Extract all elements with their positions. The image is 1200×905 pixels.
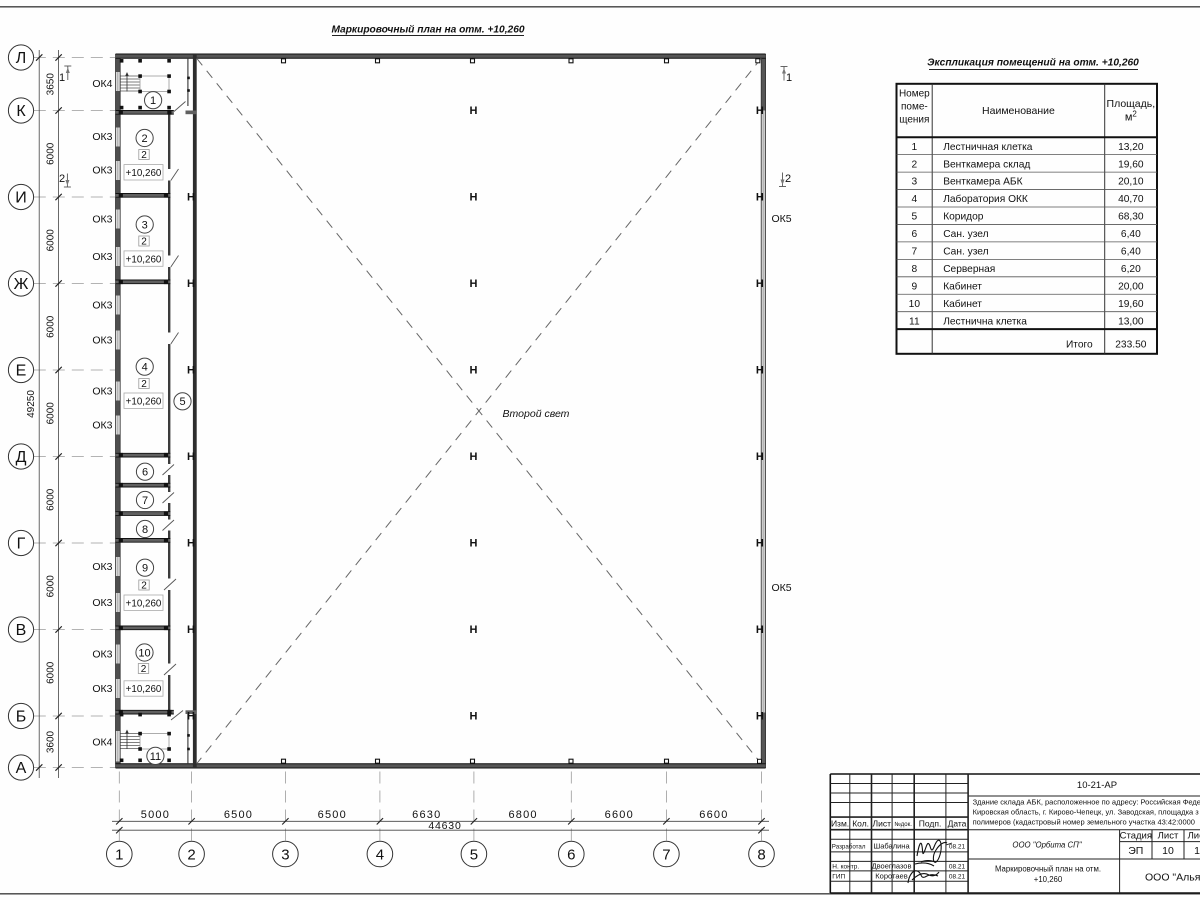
- svg-text:Н: Н: [756, 364, 764, 376]
- svg-text:7: 7: [142, 495, 148, 507]
- svg-text:1: 1: [59, 72, 65, 84]
- svg-text:Площадь,: Площадь,: [1107, 98, 1156, 110]
- svg-text:Лист: Лист: [873, 819, 892, 829]
- svg-text:Кол.: Кол.: [852, 819, 869, 829]
- svg-text:Г: Г: [17, 536, 26, 553]
- svg-text:10: 10: [138, 647, 150, 659]
- svg-text:+10,260: +10,260: [126, 684, 162, 695]
- svg-text:5: 5: [912, 212, 918, 223]
- svg-text:2: 2: [141, 379, 147, 390]
- svg-text:3650: 3650: [45, 73, 56, 96]
- svg-text:Дата: Дата: [948, 819, 967, 829]
- svg-text:2: 2: [187, 846, 195, 863]
- svg-text:Н: Н: [470, 451, 478, 463]
- svg-text:ОК3: ОК3: [92, 386, 112, 398]
- svg-text:ОК3: ОК3: [92, 251, 112, 263]
- svg-text:+10,260: +10,260: [1034, 875, 1063, 884]
- svg-text:3: 3: [142, 219, 148, 231]
- svg-text:Н: Н: [470, 278, 478, 290]
- svg-text:Ж: Ж: [14, 276, 29, 293]
- svg-text:Н: Н: [470, 537, 478, 549]
- svg-text:20,10: 20,10: [1118, 177, 1144, 188]
- svg-text:Венткамера склад: Венткамера склад: [943, 159, 1030, 170]
- svg-text:Н: Н: [756, 451, 764, 463]
- svg-text:Серверная: Серверная: [943, 264, 995, 275]
- svg-text:5: 5: [179, 396, 185, 408]
- svg-text:233.50: 233.50: [1115, 340, 1146, 351]
- svg-text:40,70: 40,70: [1118, 194, 1144, 205]
- svg-text:ОК3: ОК3: [92, 131, 112, 143]
- svg-text:ОК5: ОК5: [772, 213, 792, 225]
- svg-text:9: 9: [912, 281, 918, 292]
- svg-text:Подп.: Подп.: [919, 819, 942, 829]
- svg-text:Н: Н: [470, 624, 478, 636]
- svg-text:Листов: Листов: [1188, 831, 1200, 842]
- svg-text:В: В: [16, 622, 27, 639]
- svg-text:Экспликация помещений на отм.: Экспликация помещений на отм. +10,260: [927, 58, 1139, 69]
- svg-text:Второй свет: Второй свет: [503, 408, 570, 420]
- svg-text:Маркировочный план на отм.: Маркировочный план на отм.: [995, 865, 1101, 874]
- svg-text:Двоеглазов: Двоеглазов: [872, 862, 912, 871]
- svg-text:Кировская область, г. Кирово-Ч: Кировская область, г. Кирово-Чепецк, ул.…: [973, 808, 1200, 817]
- svg-text:Н: Н: [187, 624, 195, 636]
- svg-text:6: 6: [567, 846, 575, 863]
- svg-text:6,40: 6,40: [1121, 229, 1141, 240]
- svg-text:19,60: 19,60: [1118, 299, 1144, 310]
- svg-text:1: 1: [912, 142, 918, 153]
- svg-text:2: 2: [141, 664, 147, 675]
- svg-text:6: 6: [912, 229, 918, 240]
- svg-text:Н: Н: [187, 191, 195, 203]
- svg-text:Н: Н: [187, 364, 195, 376]
- svg-text:ОК3: ОК3: [92, 683, 112, 695]
- svg-text:Н: Н: [470, 710, 478, 722]
- svg-text:Кабинет: Кабинет: [943, 298, 982, 310]
- svg-text:Лестнична клетка: Лестнична клетка: [943, 316, 1027, 327]
- svg-text:6500: 6500: [224, 809, 253, 821]
- svg-text:3: 3: [281, 846, 289, 863]
- svg-text:Разработал: Разработал: [832, 844, 866, 851]
- svg-text:1: 1: [150, 95, 156, 107]
- svg-text:Коридор: Коридор: [943, 212, 984, 223]
- svg-text:6000: 6000: [45, 488, 56, 511]
- svg-text:ГИП: ГИП: [832, 874, 845, 881]
- svg-text:+10,260: +10,260: [126, 254, 162, 265]
- svg-text:№док.: №док.: [894, 821, 912, 828]
- svg-text:ОК3: ОК3: [92, 649, 112, 661]
- svg-text:8: 8: [757, 846, 765, 863]
- svg-text:Н: Н: [756, 191, 764, 203]
- svg-text:полимеров (кадастровый номер з: полимеров (кадастровый номер земельного …: [973, 818, 1195, 827]
- svg-text:Стадия: Стадия: [1120, 831, 1152, 842]
- svg-text:И: И: [15, 190, 27, 207]
- svg-text:+10,260: +10,260: [126, 396, 162, 407]
- svg-text:10: 10: [909, 299, 921, 310]
- svg-text:ОК5: ОК5: [772, 582, 792, 594]
- svg-text:7: 7: [662, 846, 670, 863]
- svg-text:10: 10: [1162, 845, 1174, 857]
- svg-text:ОК4: ОК4: [92, 78, 112, 90]
- svg-text:1: 1: [115, 846, 123, 863]
- svg-text:6600: 6600: [699, 809, 728, 821]
- svg-text:Н. контр.: Н. контр.: [832, 864, 859, 871]
- svg-text:ОК3: ОК3: [92, 597, 112, 609]
- svg-text:8: 8: [142, 524, 148, 536]
- svg-text:20,00: 20,00: [1118, 281, 1144, 292]
- svg-text:Н: Н: [187, 451, 195, 463]
- svg-text:3: 3: [912, 177, 918, 188]
- svg-text:поме-: поме-: [901, 102, 928, 113]
- svg-text:4: 4: [912, 194, 918, 205]
- svg-text:А: А: [16, 760, 27, 777]
- svg-text:2: 2: [141, 581, 147, 592]
- svg-text:Н: Н: [187, 710, 195, 722]
- svg-text:6800: 6800: [508, 809, 537, 821]
- svg-text:2: 2: [59, 173, 65, 185]
- svg-text:Н: Н: [187, 278, 195, 290]
- svg-text:Номер: Номер: [899, 89, 930, 100]
- svg-text:Сан. узел: Сан. узел: [943, 229, 988, 240]
- svg-text:08.21: 08.21: [949, 844, 966, 851]
- svg-text:Е: Е: [16, 363, 27, 380]
- svg-text:Наименование: Наименование: [982, 105, 1055, 117]
- svg-text:6,40: 6,40: [1121, 247, 1141, 258]
- svg-text:6000: 6000: [45, 402, 56, 425]
- svg-text:6000: 6000: [45, 229, 56, 252]
- svg-text:Здание склада АБК, расположенн: Здание склада АБК, расположенное по адре…: [973, 798, 1200, 807]
- svg-text:9: 9: [142, 563, 148, 575]
- svg-text:Б: Б: [16, 709, 27, 726]
- svg-text:6000: 6000: [45, 142, 56, 165]
- svg-text:6600: 6600: [605, 809, 634, 821]
- svg-text:ОК3: ОК3: [92, 165, 112, 177]
- svg-text:11: 11: [150, 751, 161, 763]
- svg-text:2: 2: [141, 150, 147, 161]
- svg-text:ЭП: ЭП: [1128, 845, 1143, 857]
- svg-text:ОК3: ОК3: [92, 300, 112, 312]
- svg-text:3600: 3600: [45, 730, 56, 753]
- svg-text:Кабинет: Кабинет: [943, 280, 982, 292]
- svg-text:7: 7: [912, 247, 918, 258]
- svg-text:ООО "Альянс: ООО "Альянс: [1145, 872, 1200, 884]
- svg-text:6000: 6000: [45, 661, 56, 684]
- svg-text:Н: Н: [470, 364, 478, 376]
- svg-text:Изм.: Изм.: [831, 819, 849, 829]
- svg-text:Н: Н: [756, 537, 764, 549]
- svg-text:6: 6: [142, 467, 148, 479]
- svg-text:Сан. узел: Сан. узел: [943, 247, 988, 258]
- svg-text:Н: Н: [756, 105, 764, 117]
- svg-text:щения: щения: [899, 115, 929, 126]
- svg-text:Маркировочный план на отм. +10: Маркировочный план на отм. +10,260: [331, 25, 524, 36]
- svg-text:К: К: [16, 103, 26, 120]
- svg-text:ОК3: ОК3: [92, 420, 112, 432]
- svg-text:13,20: 13,20: [1118, 142, 1144, 153]
- svg-text:4: 4: [142, 362, 148, 374]
- svg-text:Н: Н: [756, 624, 764, 636]
- svg-text:Лист: Лист: [1158, 831, 1179, 842]
- svg-text:4: 4: [376, 846, 384, 863]
- svg-text:Л: Л: [16, 50, 27, 67]
- svg-text:6000: 6000: [45, 315, 56, 338]
- svg-text:2: 2: [785, 173, 791, 185]
- svg-text:Н: Н: [756, 278, 764, 290]
- svg-text:Венткамера АБК: Венткамера АБК: [943, 177, 1022, 188]
- svg-text:08.21: 08.21: [949, 864, 966, 871]
- svg-text:Лаборатория ОКК: Лаборатория ОКК: [943, 193, 1028, 205]
- svg-text:2: 2: [142, 133, 148, 145]
- svg-text:6500: 6500: [318, 809, 347, 821]
- svg-text:10-21-АР: 10-21-АР: [1077, 780, 1117, 791]
- svg-text:8: 8: [912, 264, 918, 275]
- svg-text:+10,260: +10,260: [126, 598, 162, 609]
- svg-text:08.21: 08.21: [949, 874, 966, 881]
- svg-text:13,00: 13,00: [1118, 316, 1144, 327]
- svg-text:ООО "Орбита СП": ООО "Орбита СП": [1012, 841, 1082, 850]
- svg-text:2: 2: [912, 159, 918, 170]
- svg-text:Д: Д: [16, 449, 27, 466]
- svg-text:5000: 5000: [141, 809, 170, 821]
- svg-text:Шабалина: Шабалина: [873, 842, 910, 851]
- svg-text:1: 1: [786, 72, 792, 84]
- svg-text:6,20: 6,20: [1121, 264, 1141, 275]
- svg-text:6000: 6000: [45, 575, 56, 598]
- svg-text:16: 16: [1194, 845, 1200, 857]
- svg-text:+10,260: +10,260: [126, 168, 162, 179]
- svg-text:11: 11: [909, 316, 920, 327]
- svg-text:ОК3: ОК3: [92, 214, 112, 226]
- svg-text:44630: 44630: [428, 820, 461, 832]
- svg-text:ОК3: ОК3: [92, 561, 112, 573]
- svg-text:Коротаев: Коротаев: [875, 872, 907, 881]
- svg-text:Н: Н: [470, 105, 478, 117]
- svg-text:Лестничная клетка: Лестничная клетка: [943, 142, 1033, 153]
- svg-text:Н: Н: [470, 191, 478, 203]
- svg-text:ОК3: ОК3: [92, 335, 112, 347]
- svg-text:19,60: 19,60: [1118, 159, 1144, 170]
- svg-text:Н: Н: [756, 710, 764, 722]
- svg-text:5: 5: [470, 846, 478, 863]
- svg-text:ОК4: ОК4: [92, 737, 112, 749]
- svg-text:2: 2: [141, 237, 147, 248]
- svg-text:Н: Н: [187, 537, 195, 549]
- svg-text:68,30: 68,30: [1118, 212, 1144, 223]
- svg-text:Итого: Итого: [1066, 340, 1093, 351]
- svg-text:49250: 49250: [26, 390, 37, 418]
